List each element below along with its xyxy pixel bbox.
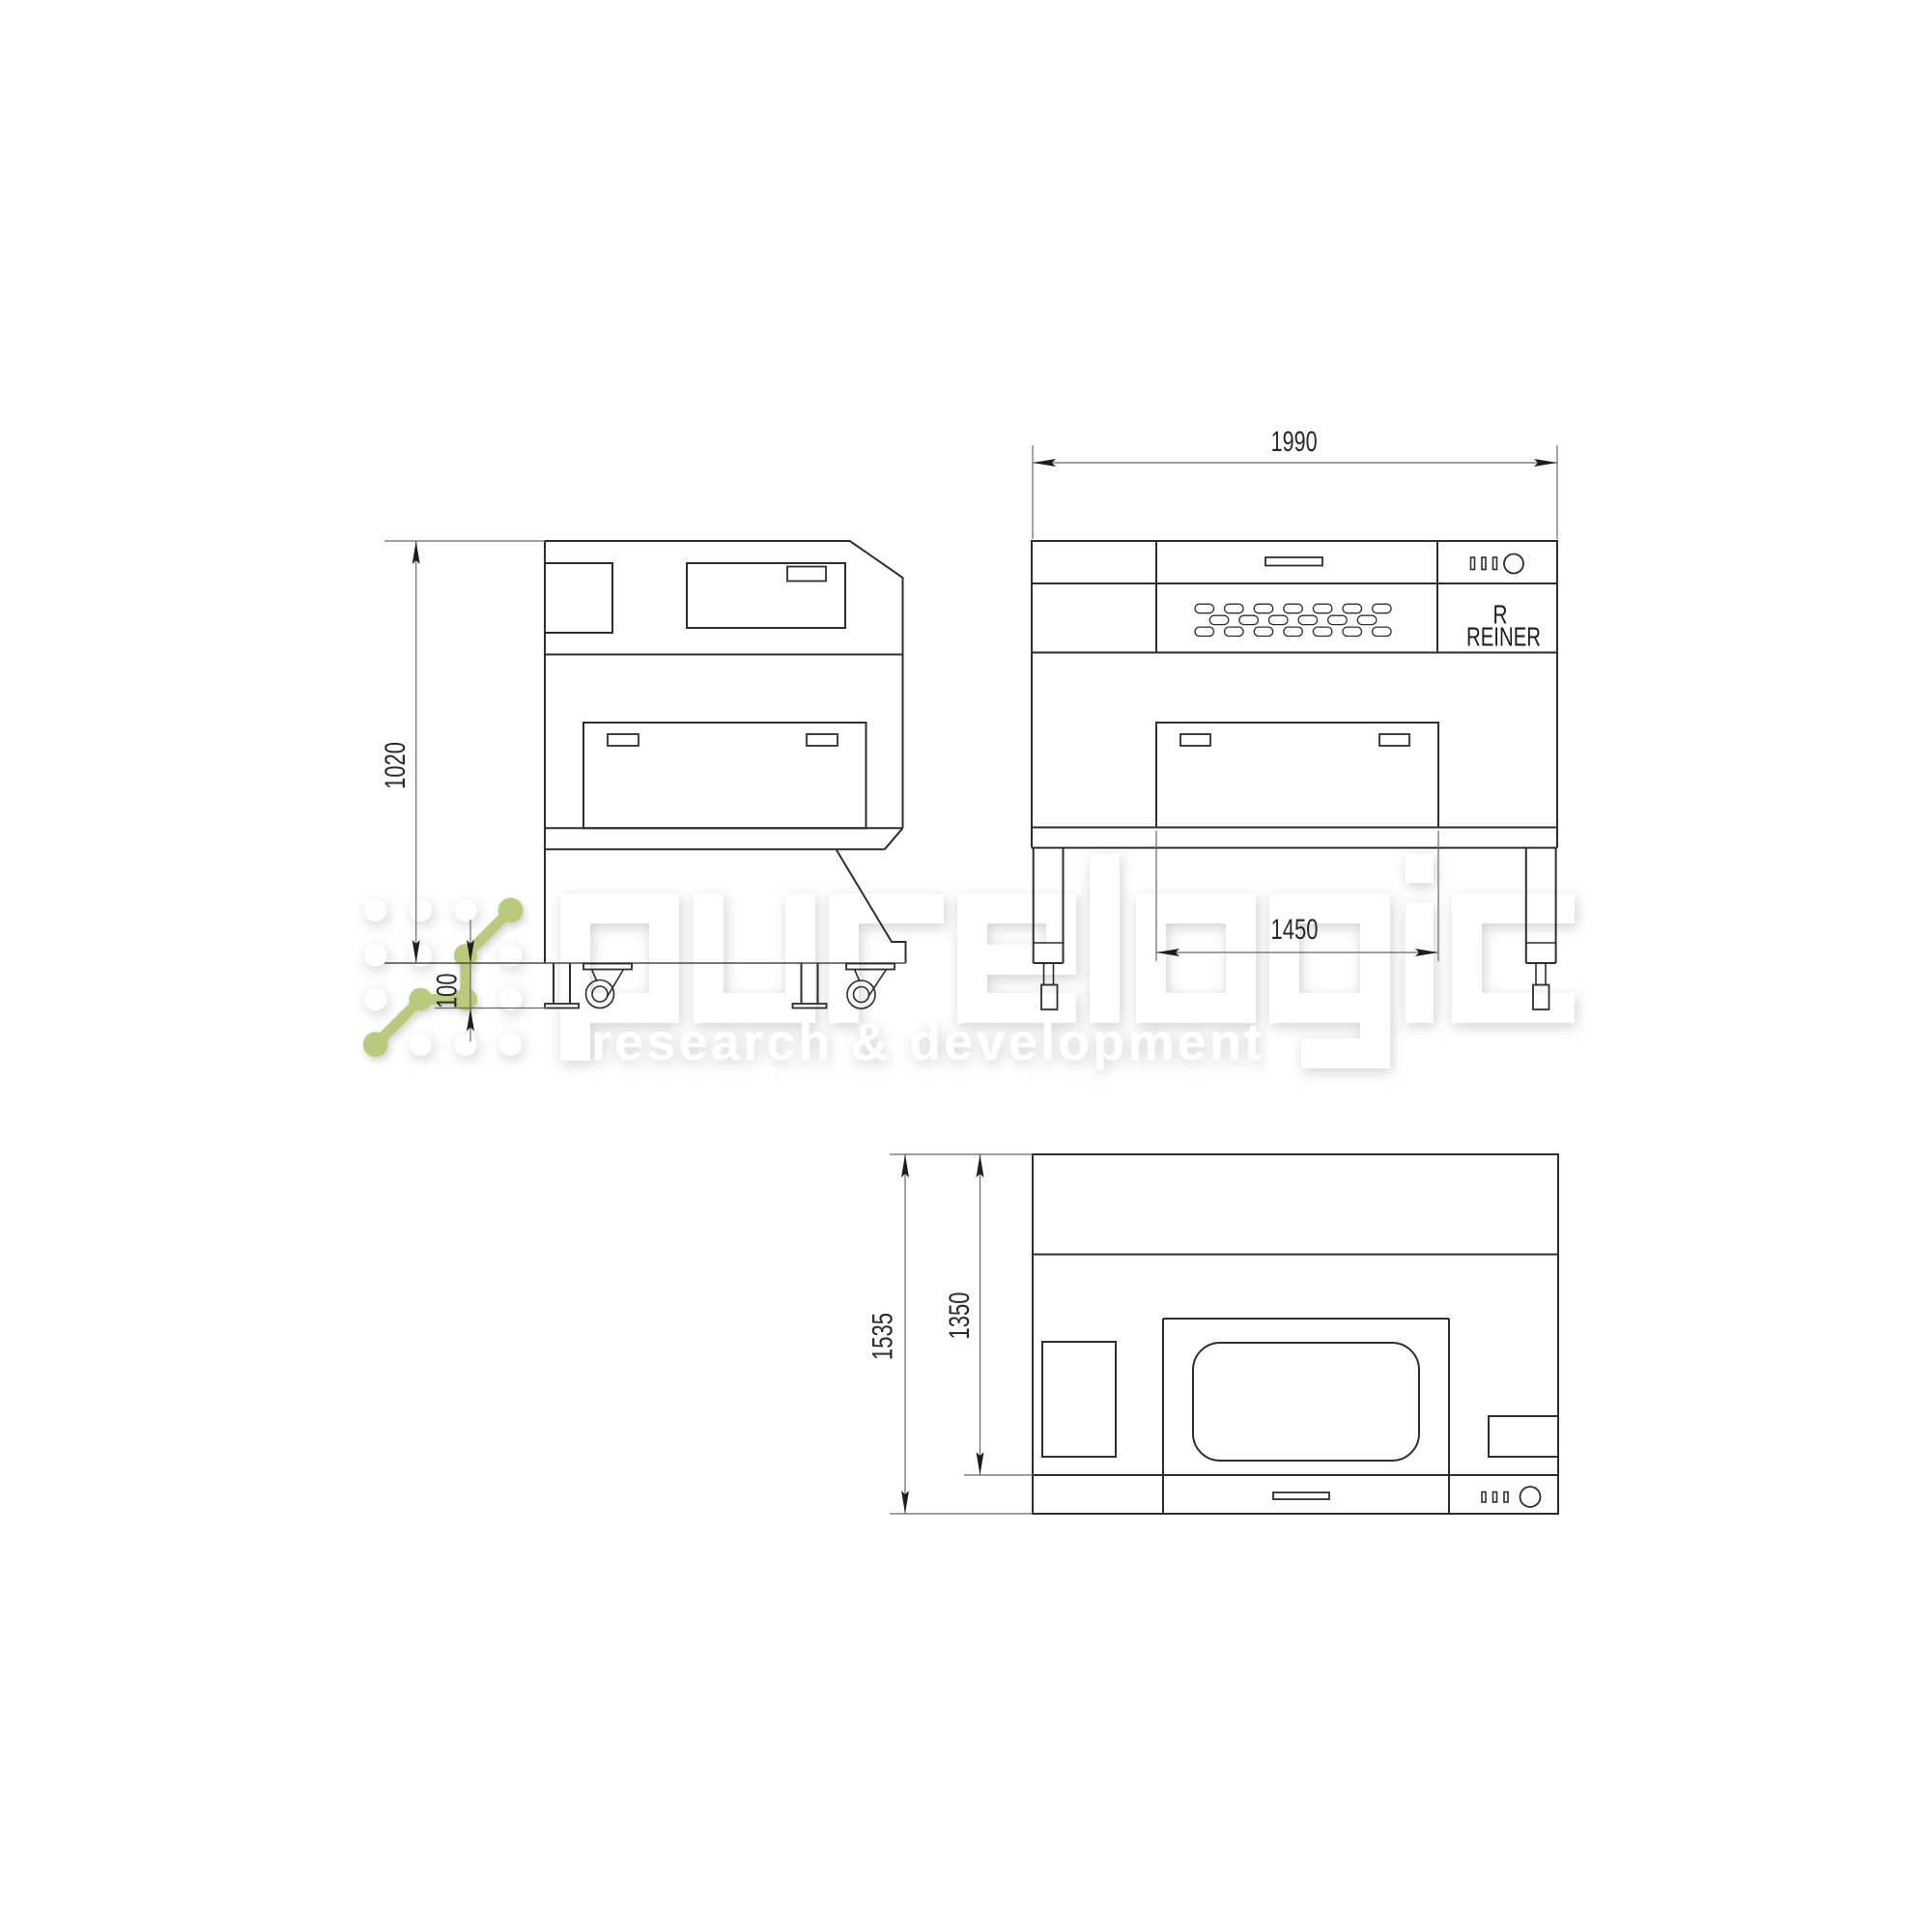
svg-text:1020: 1020: [380, 742, 412, 789]
svg-text:1990: 1990: [1271, 426, 1318, 458]
svg-text:1450: 1450: [1271, 914, 1319, 946]
svg-text:100: 100: [432, 974, 464, 1009]
svg-text:1350: 1350: [944, 1293, 976, 1340]
svg-text:research & development: research & development: [591, 1013, 1267, 1071]
svg-text:1535: 1535: [867, 1313, 899, 1360]
svg-text:REINER: REINER: [1466, 622, 1541, 652]
